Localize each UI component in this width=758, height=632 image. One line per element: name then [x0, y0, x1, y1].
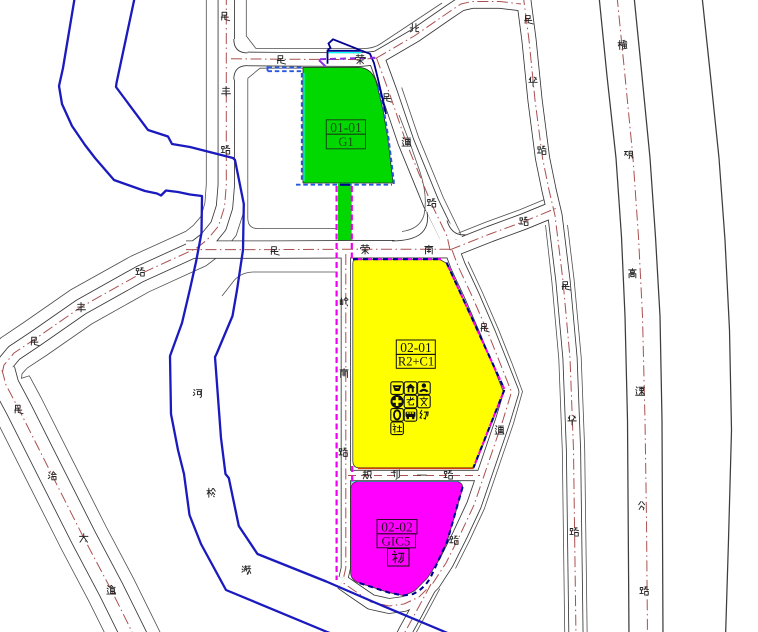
svg-text:02-01: 02-01	[400, 340, 432, 355]
svg-text:GIC5: GIC5	[382, 534, 411, 549]
svg-text:02-02: 02-02	[381, 520, 413, 535]
svg-text:G1: G1	[338, 135, 353, 149]
svg-text:R2+C1: R2+C1	[398, 355, 434, 369]
svg-text:01-01: 01-01	[330, 120, 362, 135]
